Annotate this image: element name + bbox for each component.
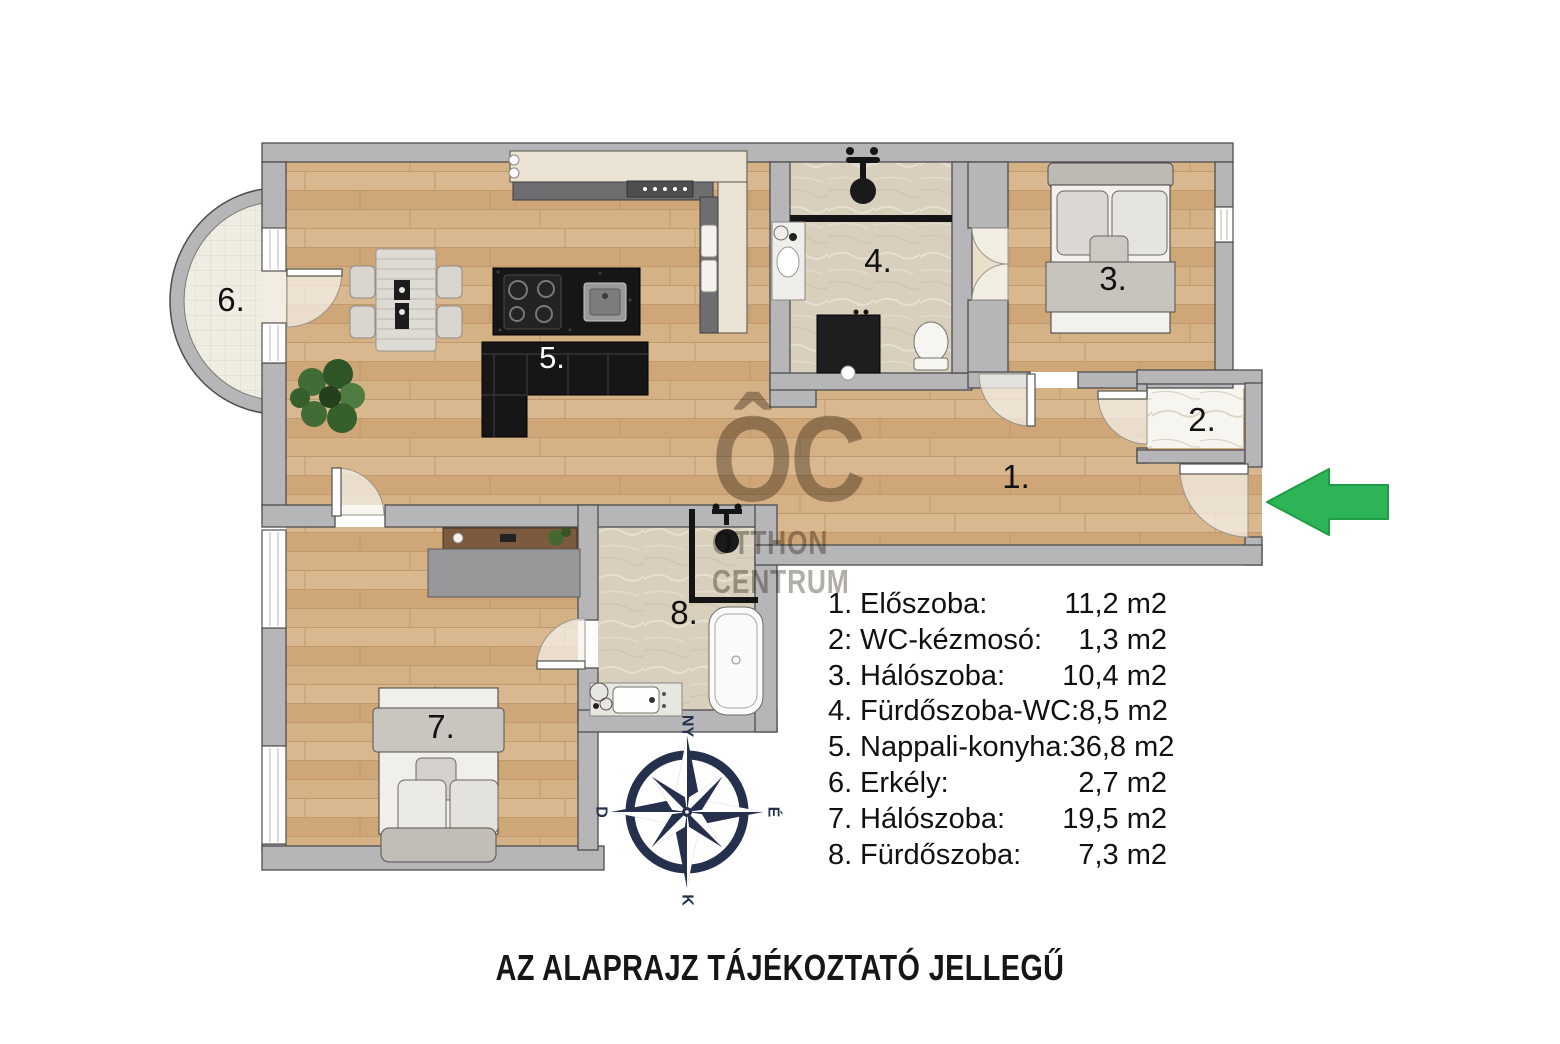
legend-room-area: 11,2 m2 [1064, 587, 1167, 623]
bedroom7-window-lower [262, 746, 286, 844]
room-number-2: 2. [1188, 401, 1216, 438]
wall-room3-right-lower [1215, 242, 1233, 374]
balcony-door-opening [262, 271, 286, 323]
compass-label-left: D [593, 806, 610, 818]
kitchen-upper-cabinet [510, 151, 747, 182]
wall-room3-right-upper [1215, 162, 1233, 207]
wall-hall-bottom [755, 545, 1262, 565]
chair [350, 306, 375, 338]
balcony-window-lower [262, 323, 286, 363]
toilet [914, 322, 948, 362]
chair [350, 266, 375, 298]
wardrobe-niche [428, 549, 580, 597]
legend-row: 2:WC-kézmosó:1,3 m2 [828, 623, 1167, 659]
kitchen-tall-cabinet [718, 182, 747, 333]
legend-room-area: 10,4 m2 [1062, 659, 1167, 695]
legend-room-name: Erkély: [860, 766, 949, 802]
compass-label-top: NY [679, 715, 696, 738]
legend-number: 6. [828, 766, 860, 802]
bathroom8-door-leaf [537, 661, 585, 669]
legend-room-name: Hálószoba: [860, 659, 1005, 695]
legend-room-area: 8,5 m2 [1079, 694, 1168, 730]
legend-room-area: 36,8 m2 [1070, 730, 1175, 766]
floorplan-drawing: 1. 2. 3. 4. 5. 6. 7. 8. [0, 0, 1560, 1044]
wall-room7-top-right [385, 505, 757, 527]
chair [437, 266, 462, 298]
wall-right-upper [1245, 383, 1262, 467]
entrance-door-leaf [1180, 464, 1248, 474]
pillow [450, 780, 498, 834]
legend-room-name: Fürdőszoba-WC: [860, 694, 1079, 730]
legend-number: 5. [828, 730, 860, 766]
legend-room-area: 19,5 m2 [1062, 802, 1167, 838]
wall-closet-top [968, 162, 1008, 228]
legend-number: 7. [828, 802, 860, 838]
legend-row: 3.Hálószoba:10,4 m2 [828, 659, 1167, 695]
legend-room-name: WC-kézmosó: [860, 623, 1042, 659]
bed-headboard [1048, 163, 1173, 187]
wall-bath4-bottom [770, 373, 972, 390]
legend-number: 4. [828, 694, 860, 730]
balcony-window-upper [262, 228, 286, 271]
legend-room-area: 7,3 m2 [1078, 838, 1167, 874]
legend-room-name: Hálószoba: [860, 802, 1005, 838]
room-number-1: 1. [1002, 458, 1030, 495]
legend-room-name: Fürdőszoba: [860, 838, 1021, 874]
chair [437, 306, 462, 338]
oven [701, 225, 717, 257]
pillow [398, 780, 446, 834]
washing-machine [817, 315, 880, 373]
bedroom7-door-leaf [332, 468, 341, 516]
bedroom3-window [1215, 207, 1233, 242]
wall-wc2-top [1137, 370, 1262, 384]
wall-closet-bottom [968, 300, 1008, 373]
legend-room-name: Előszoba: [860, 587, 987, 623]
compass-rose: NY É D K [593, 715, 784, 906]
room-number-7: 7. [427, 708, 455, 745]
legend-room-name: Nappali-konyha: [860, 730, 1070, 766]
wall-left-upper [262, 162, 286, 231]
wall-left-lower [262, 628, 286, 746]
legend-room-area: 1,3 m2 [1078, 623, 1167, 659]
legend-row: 6.Erkély:2,7 m2 [828, 766, 1167, 802]
disclaimer-text: AZ ALAPRAJZ TÁJÉKOZTATÓ JELLEGŰ [496, 947, 1065, 989]
legend-row: 5.Nappali-konyha:36,8 m2 [828, 730, 1167, 766]
wall-left-mid [262, 363, 286, 507]
dishwasher [701, 260, 717, 292]
shower-head [850, 178, 876, 204]
room-number-6: 6. [217, 281, 245, 318]
wall-room7-top-left [262, 505, 335, 527]
legend-number: 1. [828, 587, 860, 623]
legend-row: 4.Fürdőszoba-WC:8,5 m2 [828, 694, 1167, 730]
room-number-5: 5. [539, 340, 565, 375]
shower-head [715, 529, 739, 553]
compass-label-bottom: K [679, 894, 696, 906]
wall-room7-right-upper [578, 505, 598, 620]
bathtub [709, 607, 763, 715]
legend-room-area: 2,7 m2 [1078, 766, 1167, 802]
room-number-4: 4. [864, 242, 892, 279]
legend-number: 8. [828, 838, 860, 874]
compass-label-right: É [765, 807, 784, 818]
desk-room7 [428, 527, 580, 597]
balcony-door-leaf [287, 269, 342, 276]
entrance-arrow-icon [1267, 469, 1388, 535]
floorplan-page: 1. 2. 3. 4. 5. 6. 7. 8. [0, 0, 1560, 1044]
legend-row: 7.Hálószoba:19,5 m2 [828, 802, 1167, 838]
shower-divider [790, 215, 952, 222]
wc2-door-leaf [1098, 391, 1147, 399]
bed-room3 [1046, 163, 1175, 333]
legend-row: 8.Fürdőszoba:7,3 m2 [828, 838, 1167, 874]
legend-number: 2: [828, 623, 860, 659]
wall-wc2-bottom [1137, 450, 1245, 463]
bed-headboard [381, 828, 496, 862]
bedroom3-door-leaf [1027, 374, 1035, 426]
legend-number: 3. [828, 659, 860, 695]
bedroom7-window-upper [262, 530, 286, 628]
room-number-8: 8. [670, 594, 698, 631]
room-legend: 1.Előszoba:11,2 m2 2:WC-kézmosó:1,3 m2 3… [828, 587, 1167, 873]
legend-row: 1.Előszoba:11,2 m2 [828, 587, 1167, 623]
room-number-3: 3. [1099, 260, 1127, 297]
